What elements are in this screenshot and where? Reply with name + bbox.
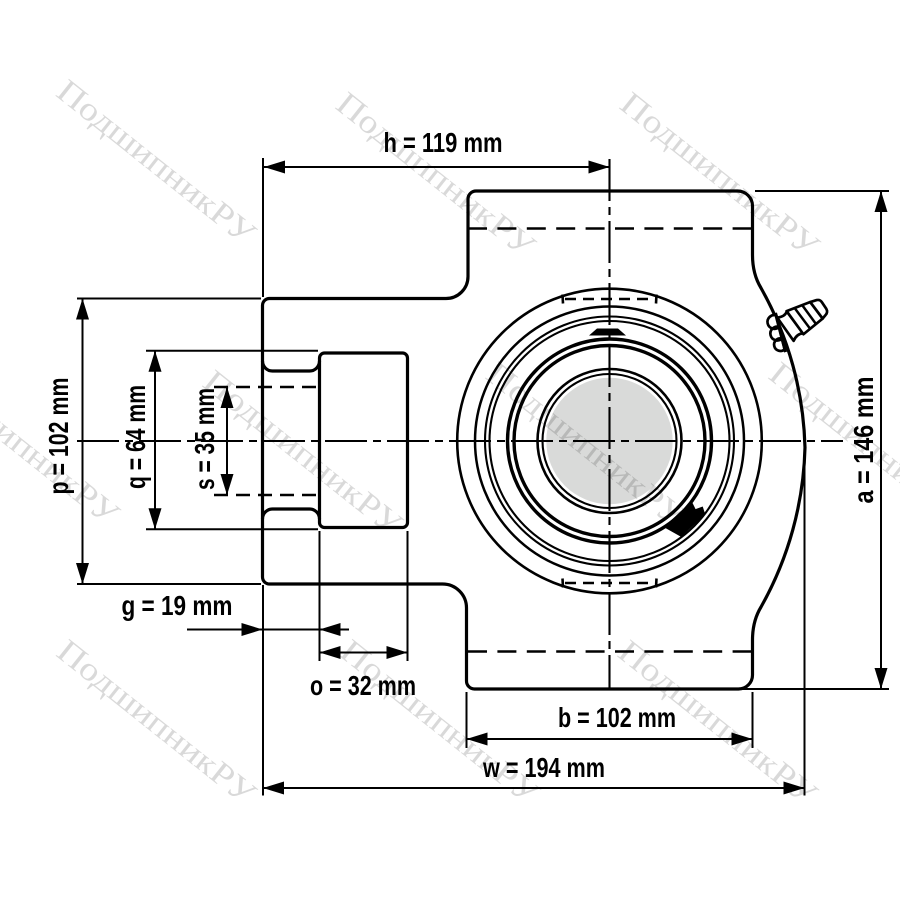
svg-text:q = 64 mm: q = 64 mm bbox=[120, 385, 151, 489]
svg-text:g = 19 mm: g = 19 mm bbox=[122, 590, 233, 621]
svg-text:b = 102 mm: b = 102 mm bbox=[558, 702, 676, 733]
